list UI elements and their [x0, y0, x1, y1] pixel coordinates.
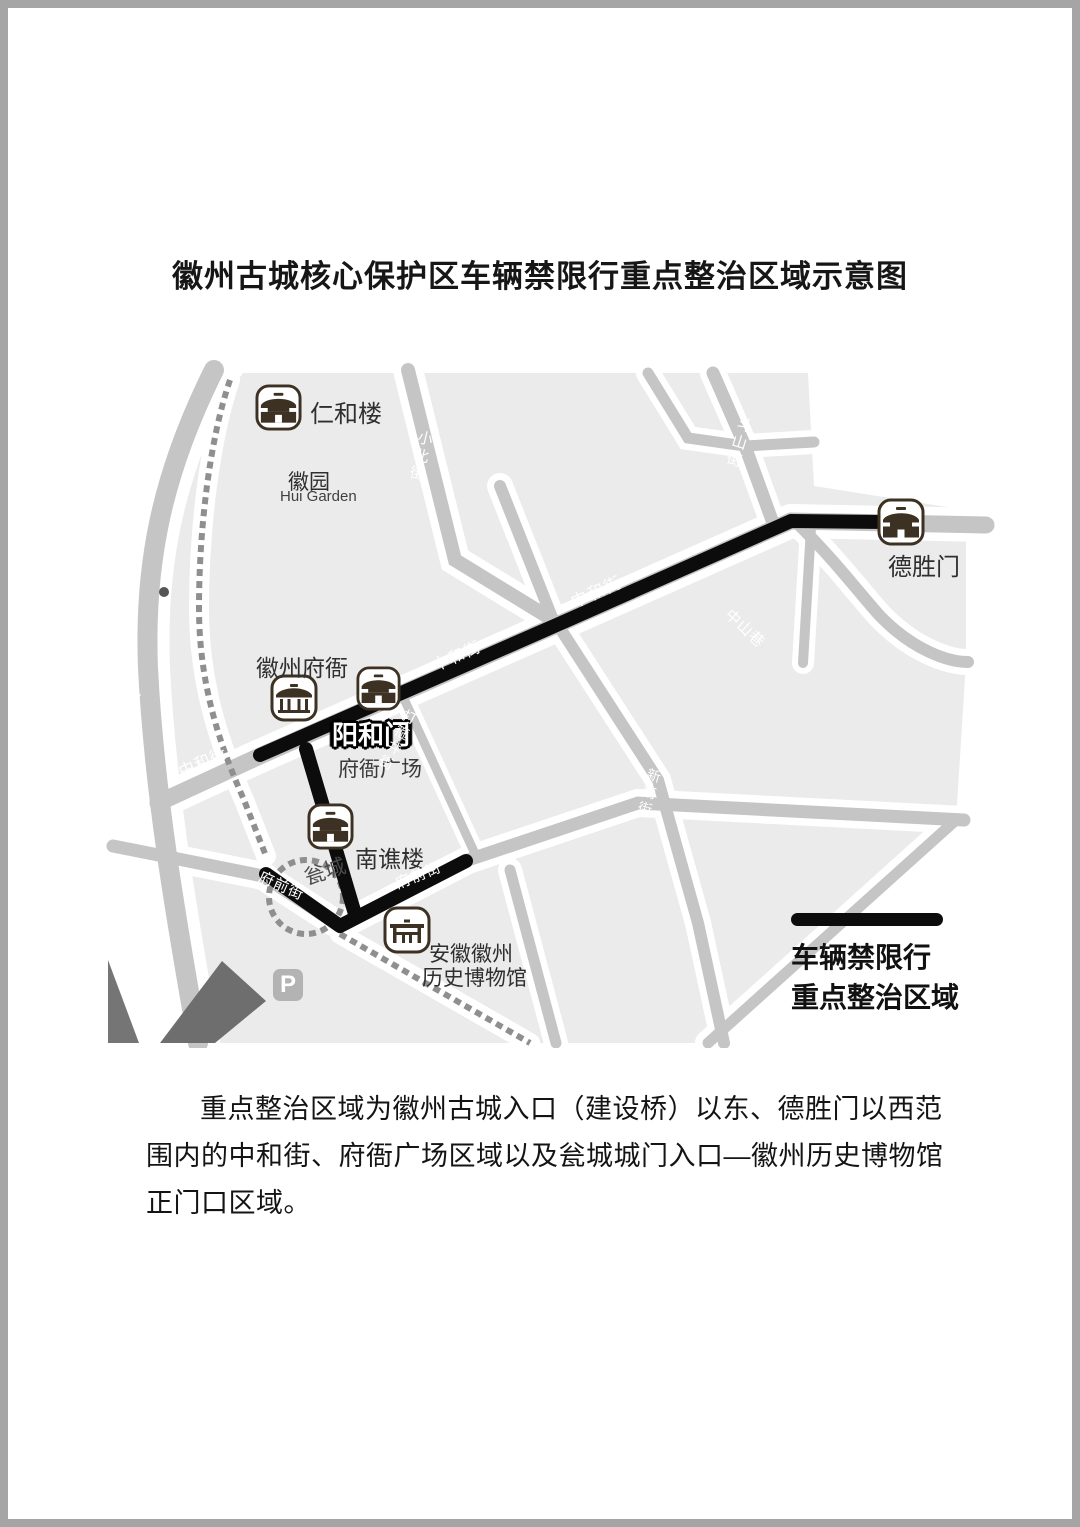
- map: 仁和楼 徽园 Hui Garden 德胜门 徽州府衙 阳和门 府衙广场 南谯楼 …: [8, 358, 1080, 1048]
- museum-archway-icon: [385, 908, 429, 952]
- page: 徽州古城核心保护区车辆禁限行重点整治区域示意图: [0, 0, 1080, 1527]
- description-line: 围内的中和街、府衙广场区域以及瓮城城门入口—徽州历史博物馆: [146, 1133, 962, 1180]
- description-line: 重点整治区域为徽州古城入口（建设桥）以东、德胜门以西范: [146, 1086, 962, 1133]
- label-huizhou-fuya: 徽州府衙: [256, 649, 348, 683]
- label-huiyuan-en: Hui Garden: [280, 488, 357, 505]
- legend-label-1: 车辆禁限行: [791, 938, 959, 978]
- deshengmen-gate-icon: [879, 500, 923, 544]
- renhelou-gate-icon: [257, 386, 300, 429]
- legend-route-swatch: [791, 913, 943, 926]
- parking-icon: P: [273, 969, 303, 1001]
- yanghemen-gate-icon: [358, 668, 399, 709]
- label-renhelou: 仁和楼: [310, 394, 382, 429]
- label-deshengmen: 德胜门: [888, 547, 960, 582]
- legend-label-2: 重点整治区域: [791, 978, 959, 1018]
- nanqiaolou-gate-icon: [309, 805, 352, 848]
- legend: 车辆禁限行 重点整治区域: [791, 913, 959, 1018]
- page-title: 徽州古城核心保护区车辆禁限行重点整治区域示意图: [8, 251, 1072, 296]
- description-line: 正门口区域。: [146, 1180, 962, 1227]
- description: 重点整治区域为徽州古城入口（建设桥）以东、德胜门以西范 围内的中和街、府衙广场区…: [146, 1086, 962, 1227]
- map-dot: [159, 587, 169, 597]
- label-museum-2: 历史博物馆: [422, 962, 527, 992]
